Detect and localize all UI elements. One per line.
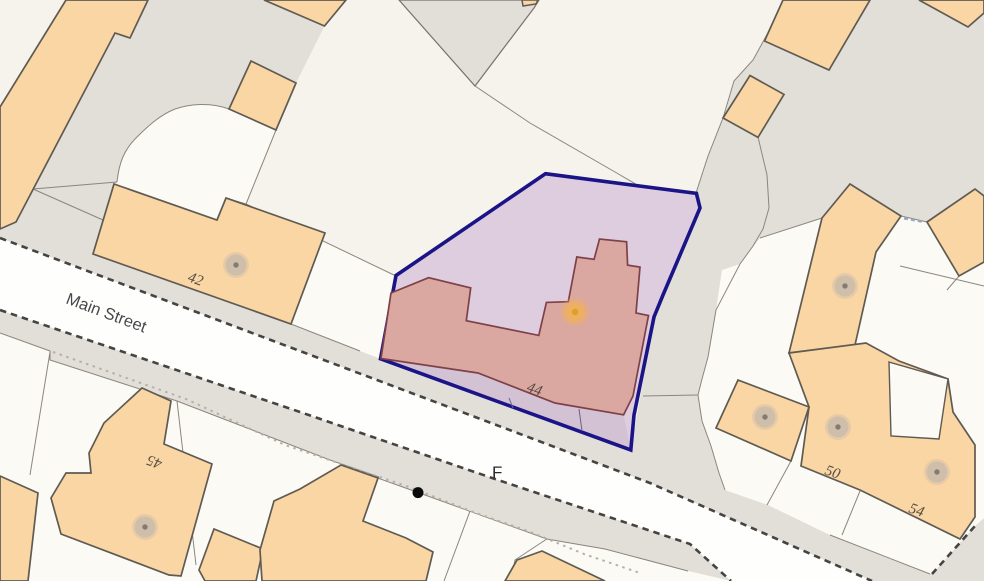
svg-text:F: F xyxy=(492,463,502,482)
